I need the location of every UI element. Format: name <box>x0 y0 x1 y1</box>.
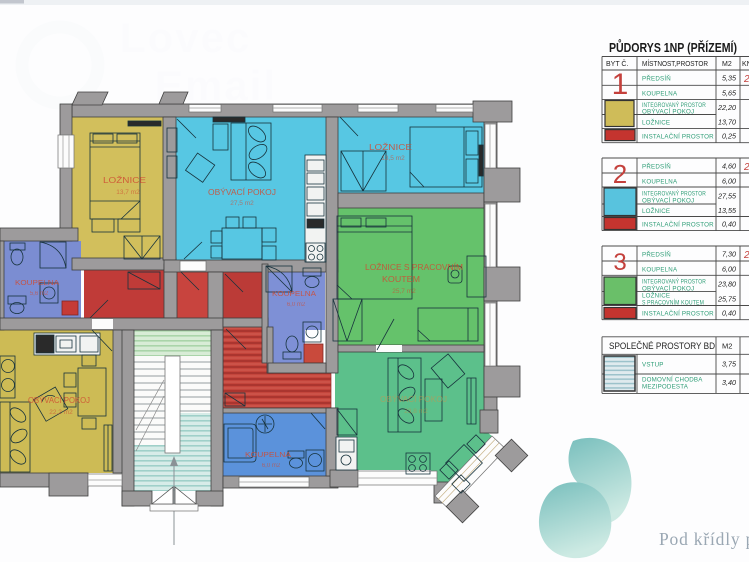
svg-text:7,30: 7,30 <box>722 250 736 259</box>
svg-text:0,25: 0,25 <box>722 132 737 141</box>
svg-text:23,80: 23,80 <box>717 280 736 289</box>
svg-text:3: 3 <box>613 249 626 276</box>
svg-text:6,00: 6,00 <box>722 177 736 186</box>
svg-text:INSTALAČNÍ PROSTOR: INSTALAČNÍ PROSTOR <box>642 311 714 318</box>
svg-text:6,00: 6,00 <box>722 265 736 274</box>
svg-text:M2: M2 <box>722 342 732 351</box>
svg-text:23,8 m2: 23,8 m2 <box>404 408 428 415</box>
svg-text:5,65: 5,65 <box>722 89 737 98</box>
svg-text:LOŽNICE: LOŽNICE <box>642 292 670 300</box>
svg-text:KN: KN <box>742 61 749 68</box>
svg-text:OBÝVACÍ POKOJ: OBÝVACÍ POKOJ <box>642 285 694 292</box>
svg-text:3,40: 3,40 <box>722 378 736 387</box>
svg-text:25,75: 25,75 <box>717 295 737 304</box>
svg-text:MÍSTNOST,PROSTOR: MÍSTNOST,PROSTOR <box>642 59 708 68</box>
svg-text:OBÝVACÍ POKOJ: OBÝVACÍ POKOJ <box>642 109 694 116</box>
svg-text:25,7 m2: 25,7 m2 <box>392 288 416 295</box>
svg-text:LOŽNICE: LOŽNICE <box>369 142 412 152</box>
svg-text:SPOLEČNÉ PROSTORY BD: SPOLEČNÉ PROSTORY BD <box>609 341 715 351</box>
svg-text:LOŽNICE: LOŽNICE <box>103 175 146 185</box>
svg-text:KOUPELNA: KOUPELNA <box>245 452 291 459</box>
svg-text:INSTALAČNÍ PROSTOR: INSTALAČNÍ PROSTOR <box>642 134 714 141</box>
svg-text:2: 2 <box>743 74 749 85</box>
svg-text:OBÝVACÍ POKOJ: OBÝVACÍ POKOJ <box>642 198 694 205</box>
svg-text:PŮDORYS 1NP (PŘÍZEMÍ): PŮDORYS 1NP (PŘÍZEMÍ) <box>609 39 737 55</box>
svg-text:27,5 m2: 27,5 m2 <box>230 200 254 207</box>
svg-text:INTEGROVANÝ PROSTOR: INTEGROVANÝ PROSTOR <box>642 191 706 198</box>
svg-text:KOUPELNA: KOUPELNA <box>272 291 316 298</box>
svg-text:KOUPELNA: KOUPELNA <box>15 280 59 287</box>
svg-text:2: 2 <box>613 159 627 189</box>
svg-text:BYT Č.: BYT Č. <box>606 59 628 68</box>
svg-text:KOUTEM: KOUTEM <box>382 274 420 284</box>
svg-text:2: 2 <box>743 162 749 173</box>
svg-text:LOŽNICE S PRACOVNÍM: LOŽNICE S PRACOVNÍM <box>365 262 463 272</box>
svg-text:OBÝVACÍ POKOJ: OBÝVACÍ POKOJ <box>380 394 447 404</box>
svg-text:13,5 m2: 13,5 m2 <box>381 155 405 162</box>
svg-text:KOUPELNA: KOUPELNA <box>642 267 678 274</box>
svg-text:LOŽNICE: LOŽNICE <box>642 207 670 215</box>
svg-text:OBÝVACÍ POKOJ: OBÝVACÍ POKOJ <box>208 187 276 197</box>
svg-text:0,40: 0,40 <box>722 309 736 318</box>
svg-text:5,35: 5,35 <box>722 74 737 83</box>
svg-text:0,40: 0,40 <box>722 220 736 229</box>
svg-text:22,2 m2: 22,2 m2 <box>49 409 73 416</box>
svg-text:PŘEDSÍŇ: PŘEDSÍŇ <box>642 251 671 259</box>
svg-text:22,20: 22,20 <box>717 103 736 112</box>
svg-text:OBÝVACÍ POKOJ: OBÝVACÍ POKOJ <box>28 395 90 405</box>
svg-text:27,55: 27,55 <box>717 192 737 201</box>
svg-text:13,55: 13,55 <box>718 206 737 215</box>
svg-text:6,0 m2: 6,0 m2 <box>262 463 281 469</box>
svg-text:PŘEDSÍŇ: PŘEDSÍŇ <box>642 163 671 171</box>
svg-text:Lovec: Lovec <box>120 14 251 61</box>
svg-text:PŘEDSÍŇ: PŘEDSÍŇ <box>642 75 671 83</box>
svg-text:KOUPELNA: KOUPELNA <box>642 179 678 186</box>
svg-text:13,7 m2: 13,7 m2 <box>116 189 140 196</box>
svg-text:Pod křídly pa: Pod křídly pa <box>659 529 749 549</box>
svg-text:3,75: 3,75 <box>722 360 737 369</box>
svg-text:4,60: 4,60 <box>722 162 736 171</box>
svg-text:M2: M2 <box>722 61 732 68</box>
svg-text:MEZIPODESTA: MEZIPODESTA <box>642 384 689 391</box>
svg-text:INSTALAČNÍ PROSTOR: INSTALAČNÍ PROSTOR <box>642 222 714 229</box>
svg-text:5,6 m2: 5,6 m2 <box>30 291 49 297</box>
svg-text:DOMOVNÍ CHODBA: DOMOVNÍ CHODBA <box>642 377 703 384</box>
svg-text:LOŽNICE: LOŽNICE <box>642 119 670 127</box>
svg-text:2: 2 <box>743 250 749 261</box>
svg-text:S PRACOVNÍM KOUTEM: S PRACOVNÍM KOUTEM <box>642 299 704 306</box>
svg-text:1: 1 <box>612 68 629 101</box>
svg-text:VSTUP: VSTUP <box>642 362 664 369</box>
svg-text:KOUPELNA: KOUPELNA <box>642 91 678 98</box>
svg-text:6,0 m2: 6,0 m2 <box>287 302 306 308</box>
svg-text:13,70: 13,70 <box>718 118 736 127</box>
